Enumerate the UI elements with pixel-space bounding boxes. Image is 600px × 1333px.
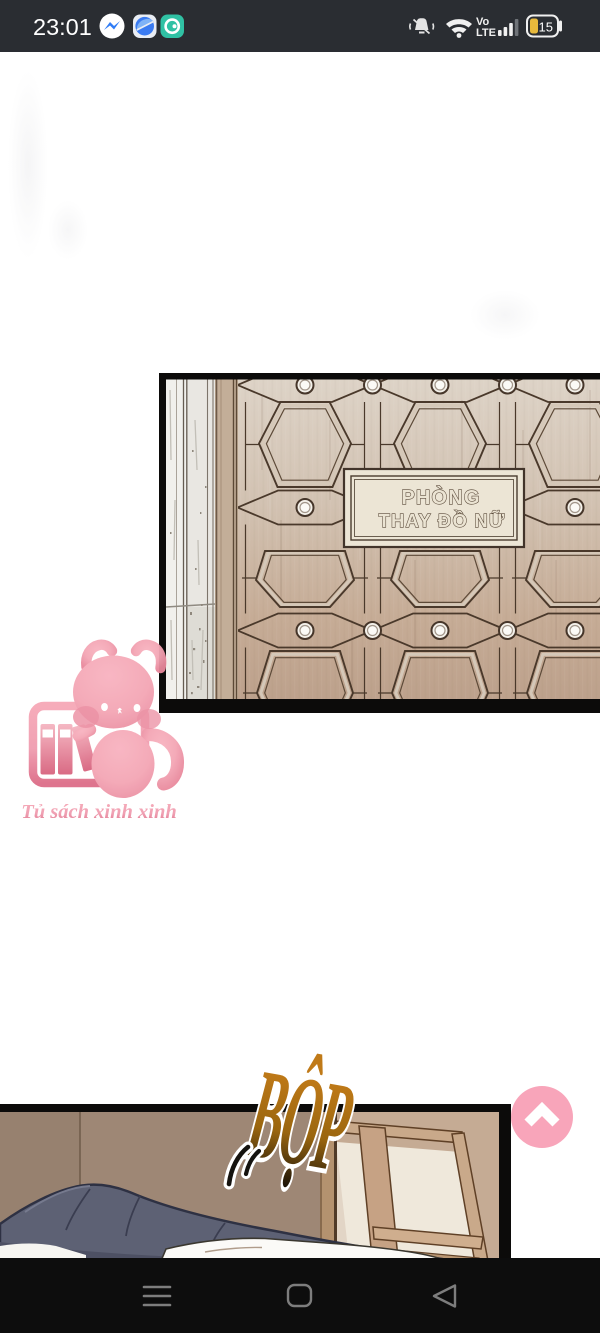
svg-text:Tủ sách xinh xinh: Tủ sách xinh xinh (21, 801, 177, 823)
svg-text:THAY ĐỒ NỮ: THAY ĐỒ NỮ (378, 510, 505, 531)
svg-text:15: 15 (539, 20, 553, 35)
svg-text:BỘP: BỘP (235, 1044, 366, 1199)
svg-text:PHÒNG: PHÒNG (401, 485, 480, 509)
svg-text:LTE: LTE (476, 27, 496, 39)
svg-text:23:01: 23:01 (33, 14, 92, 40)
